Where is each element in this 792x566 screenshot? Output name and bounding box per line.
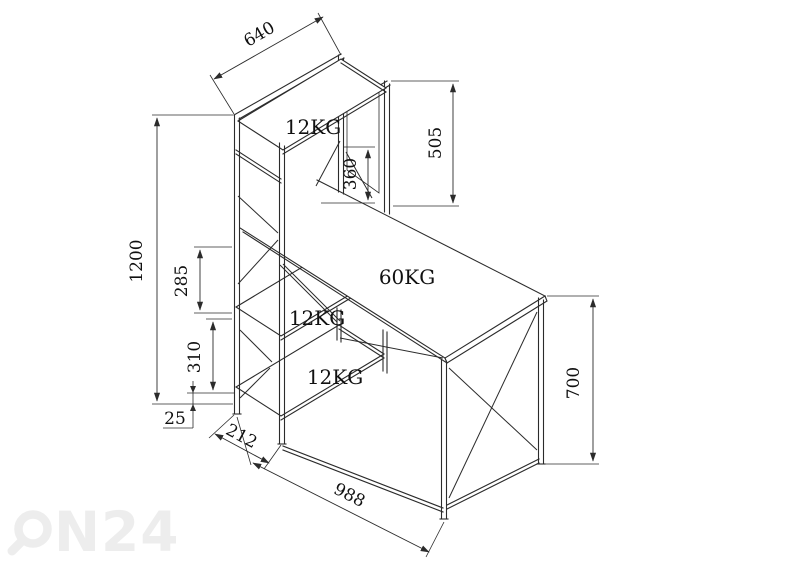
side-cross-brace — [449, 368, 537, 450]
dim-tower-height: 1200 — [127, 239, 147, 282]
arrow-icon — [190, 386, 196, 393]
dim-panel-height: 505 — [426, 127, 446, 159]
arrow-icon — [190, 404, 196, 411]
label-bottom-shelf-load: 12KG — [307, 365, 363, 389]
top-shelf — [234, 54, 390, 154]
dim-lower-shelf-gap: 310 — [185, 341, 205, 373]
label-top-shelf-load: 12KG — [285, 115, 341, 139]
watermark-text: N24 — [54, 500, 180, 564]
label-middle-shelf-load: 12KG — [289, 306, 345, 330]
dim-bottom-clearance: 25 — [164, 409, 186, 429]
dim-upper-shelf-gap: 285 — [172, 265, 192, 297]
dim-desk-length: 988 — [330, 479, 368, 512]
technical-drawing-page: N24 — [0, 0, 792, 566]
dim-top-shelf-length: 640 — [240, 18, 278, 52]
dim-riser-height: 360 — [341, 158, 361, 190]
magnifier-handle-icon — [12, 542, 21, 551]
dim-desk-height: 700 — [564, 367, 584, 399]
watermark: N24 — [12, 500, 180, 564]
drawing-canvas: N24 — [0, 0, 792, 566]
label-desktop-load: 60KG — [379, 265, 435, 289]
